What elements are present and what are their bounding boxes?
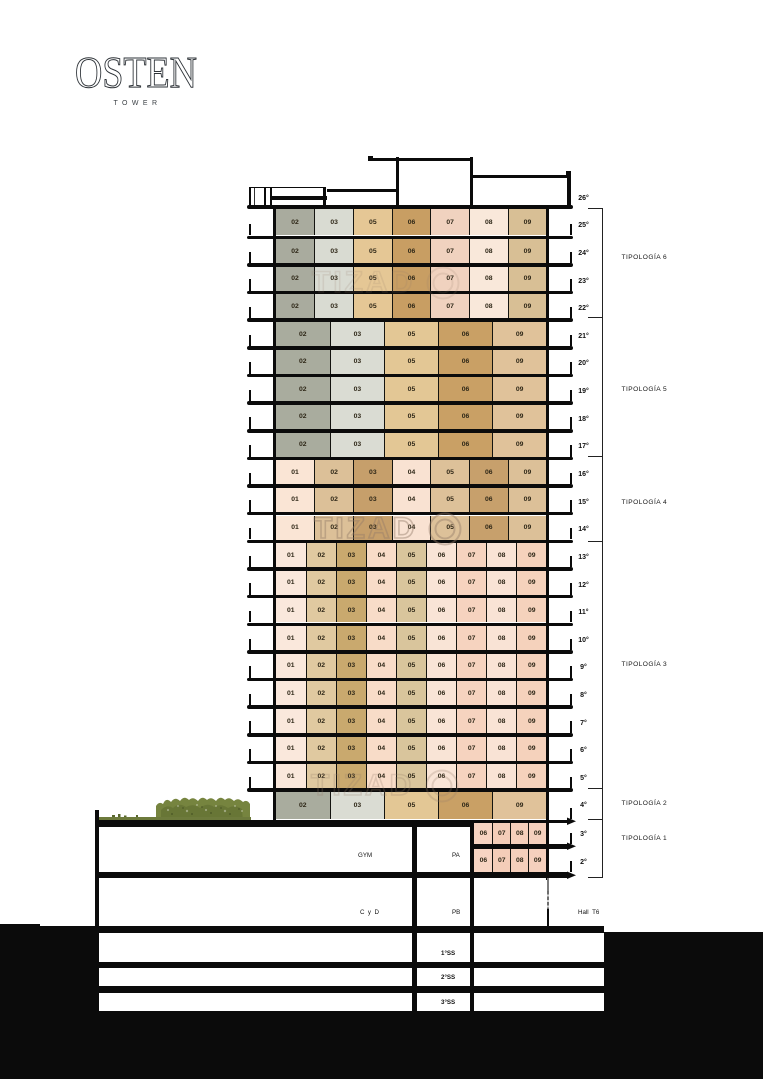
svg-text:OSTEN: OSTEN <box>75 48 197 94</box>
